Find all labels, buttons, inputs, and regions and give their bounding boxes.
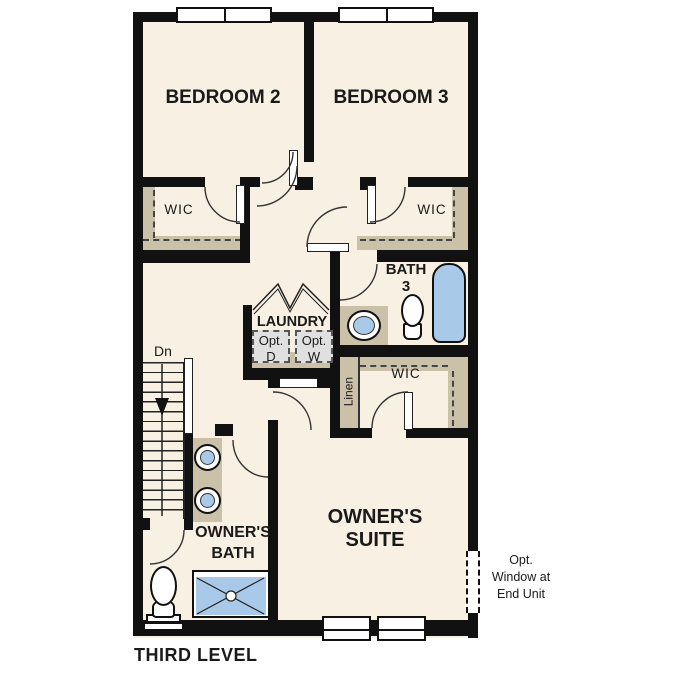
opt-washer-box: Opt. W xyxy=(295,330,333,363)
laundry-label: LAUNDRY xyxy=(257,315,327,331)
laundry-bifold-doors-inner xyxy=(254,289,328,314)
opt-window-note-line2: Window at xyxy=(486,569,556,586)
bedroom3-door-swing xyxy=(307,207,347,247)
wic2-label: WIC xyxy=(164,203,193,218)
toilet-room-door-swing xyxy=(150,530,184,564)
stair-down-arrow xyxy=(155,398,169,416)
bath3-label-line2: 3 xyxy=(402,279,410,296)
opt-washer-line1: Opt. xyxy=(297,333,331,349)
owners-bath-label-line2: BATH xyxy=(211,545,254,563)
opt-washer-line2: W xyxy=(297,349,331,365)
bedroom2-door-swing xyxy=(262,152,293,183)
bedroom3-label: BEDROOM 3 xyxy=(333,88,448,109)
owners-wic-door-swing xyxy=(372,392,408,428)
wic2-door-swing xyxy=(205,187,240,222)
bath3-door-swing xyxy=(340,264,377,300)
linen-label: Linen xyxy=(342,377,355,406)
bedroom2-label: BEDROOM 2 xyxy=(165,88,280,109)
owners-suite-label-line2: SUITE xyxy=(346,529,405,551)
opt-dryer-line2: D xyxy=(254,349,288,365)
bath3-label-line1: BATH xyxy=(386,262,427,279)
hall-door-swing xyxy=(257,166,297,206)
plan-title: THIRD LEVEL xyxy=(134,645,258,666)
shower-drain xyxy=(226,591,236,601)
owners-suite-label-line1: OWNER'S xyxy=(328,506,423,528)
opt-window-note-line1: Opt. xyxy=(486,552,556,569)
owners-suite-door-swing xyxy=(273,392,311,430)
wic3-label: WIC xyxy=(417,203,446,218)
laundry-bifold-doors xyxy=(253,284,329,310)
opt-window-note: Opt. Window at End Unit xyxy=(486,552,556,603)
owners-wic-label: WIC xyxy=(391,367,420,382)
owners-bath-label-line1: OWNER'S xyxy=(195,524,271,542)
opt-dryer-line1: Opt. xyxy=(254,333,288,349)
stairs-dn-label: Dn xyxy=(154,344,172,359)
floor-plan: BEDROOM 2 BEDROOM 3 WIC WIC WIC Linen LA… xyxy=(0,0,687,687)
opt-window-note-line3: End Unit xyxy=(486,586,556,603)
owners-bath-door-swing xyxy=(233,440,268,477)
opt-dryer-box: Opt. D xyxy=(252,330,290,363)
wic3-door-swing xyxy=(370,187,405,222)
